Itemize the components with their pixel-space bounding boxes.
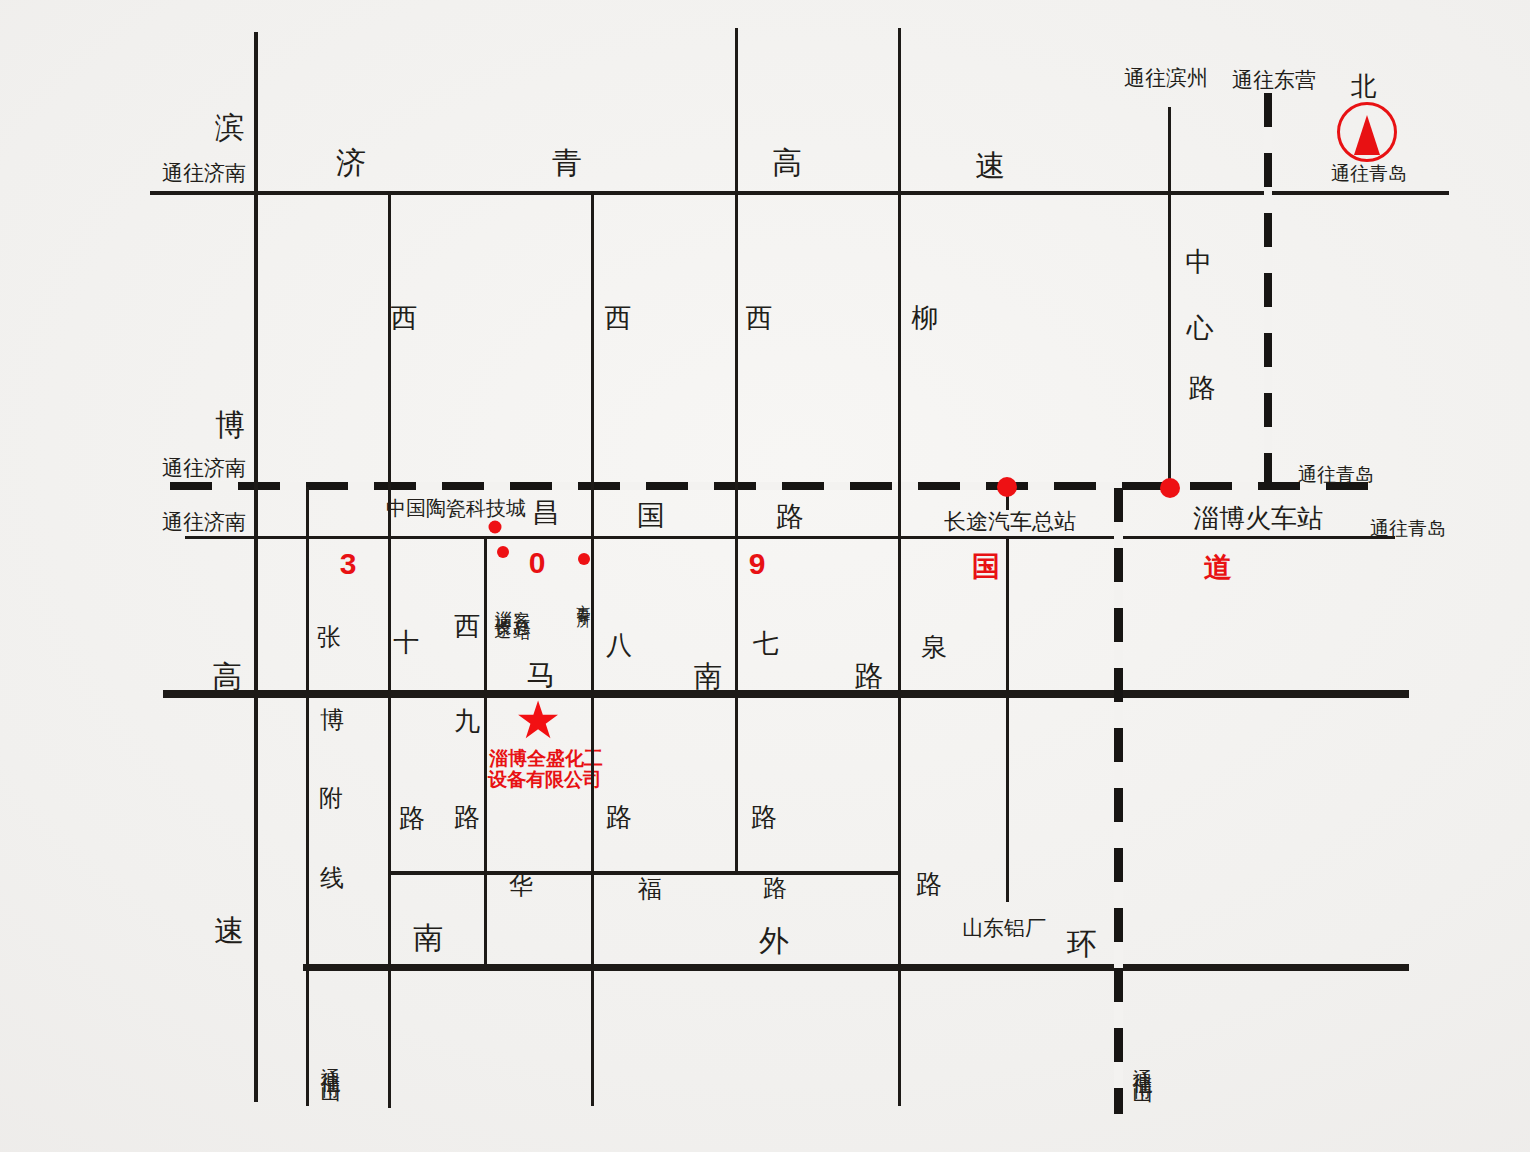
passenger-terminal-dot (497, 546, 509, 558)
zhongxin-road-char-xin: 心 (1187, 315, 1214, 342)
zhangbo-branch-char-zhang: 张 (317, 625, 341, 649)
compass-north-label: 北 (1351, 73, 1377, 99)
changguo-road-char-lu: 路 (776, 503, 804, 531)
huafu-road-char-fu: 福 (638, 877, 662, 901)
railway-station-dot (1160, 478, 1180, 498)
binbo-expressway-char-su: 速 (214, 916, 244, 946)
liuquan-road-char-lu: 路 (916, 871, 942, 897)
route309-digit-0: 0 (529, 548, 546, 578)
compass-needle-icon (1354, 115, 1380, 155)
xishi-road-char-xi: 西 (391, 305, 418, 332)
to-boshan-right: 通往博山 (1133, 1052, 1153, 1072)
bus-terminal-road-line (1006, 537, 1009, 902)
huafu-road-char-hua: 华 (509, 874, 533, 898)
zhangbo-branch-line (306, 487, 309, 1106)
to-jinan-changguo: 通往济南 (162, 511, 246, 532)
boshan-railway-line (1114, 488, 1123, 1114)
south-outer-ring-line (303, 964, 1409, 971)
south-ring-char-nan: 南 (413, 923, 443, 953)
zhangbo-branch-char-xian: 线 (320, 866, 344, 890)
route309-digit-9: 9 (749, 549, 766, 579)
binbo-expressway-line (254, 32, 258, 1102)
liuquan-road-char-quan: 泉 (921, 634, 947, 660)
to-binzhou: 通往滨州 (1124, 67, 1208, 88)
passenger-terminal-col-right: 客运总站 (514, 597, 531, 613)
xishi-road-char-shi: 十 (393, 629, 419, 655)
xiba-road-char-xi: 西 (605, 305, 632, 332)
binbo-expressway-char-bo: 博 (215, 410, 245, 440)
south-ring-char-wai: 外 (759, 926, 789, 956)
compass-to-qingdao-label: 通往青岛 (1331, 164, 1407, 183)
bus-terminal-dot (997, 477, 1017, 497)
manan-road-char-lu: 路 (855, 662, 884, 691)
changguo-road-char-chang: 昌 (532, 499, 560, 527)
to-boshan-left: 通往博山 (321, 1051, 341, 1071)
jiqing-expressway-char-gao: 高 (772, 148, 802, 178)
to-dongying: 通往东营 (1232, 69, 1316, 90)
huafu-road-char-lu: 路 (763, 876, 787, 900)
railway-station: 淄博火车站 (1193, 505, 1323, 531)
zhangbo-branch-char-fu: 附 (319, 786, 343, 810)
to-jinan-railway: 通往济南 (162, 457, 246, 478)
xiba-road-char-ba: 八 (606, 632, 632, 658)
xijiu-road-char-lu: 路 (454, 804, 480, 830)
to-qingdao-changguo: 通往青岛 (1370, 519, 1446, 538)
detention-center-dot (578, 553, 590, 565)
changguo-road-line (185, 536, 1395, 539)
to-jinan-top: 通往济南 (162, 162, 246, 183)
xiqi-road-char-qi: 七 (753, 630, 779, 656)
route309-char-dao: 道 (1204, 554, 1232, 582)
company-name-line2: 设备有限公司 (488, 770, 602, 789)
xiba-road-char-lu: 路 (606, 804, 632, 830)
xiqi-road-char-lu: 路 (751, 804, 777, 830)
manan-road-char-nan: 南 (694, 662, 723, 691)
manan-road-char-ma: 马 (527, 661, 556, 690)
jiaoji-railway-line (170, 482, 1390, 490)
route309-digit-3: 3 (340, 549, 357, 579)
passenger-terminal-col-left: 淄博长途 (495, 597, 512, 613)
dongying-dashed-line (1264, 93, 1272, 487)
shandong-aluminum-plant: 山东铝厂 (962, 917, 1046, 938)
xijiu-road-char-jiu: 九 (454, 708, 480, 734)
detention-center: 市看守所 (577, 593, 591, 605)
jiqing-expressway-char-qing: 青 (552, 148, 582, 178)
zhongxin-road-line (1168, 107, 1171, 487)
xijiu-road-char-xi: 西 (454, 613, 480, 639)
zhongxin-road-char-zhong: 中 (1186, 249, 1213, 276)
liuquan-road-char-liu: 柳 (912, 305, 939, 332)
ceramic-city-dot (489, 521, 502, 534)
binbo-expressway-char-gao: 高 (212, 662, 242, 692)
jiqing-expressway-line (150, 191, 1449, 195)
compass-icon (1337, 102, 1397, 162)
xiba-road-line (591, 193, 594, 1106)
ceramic-city: 中国陶瓷科技城 (386, 498, 526, 518)
liuquan-road-line (898, 28, 901, 1106)
changguo-road-char-guo: 国 (637, 502, 665, 530)
jiqing-expressway-char-ji: 济 (336, 148, 366, 178)
zhangbo-branch-char-bo: 博 (320, 708, 344, 732)
binbo-expressway-char-bin: 滨 (215, 113, 245, 143)
jiqing-expressway-char-su: 速 (975, 151, 1005, 181)
zhongxin-road-char-lu: 路 (1189, 375, 1216, 402)
xiqi-road-line (735, 28, 738, 875)
manan-road-line (163, 690, 1409, 698)
to-qingdao-railway: 通往青岛 (1298, 465, 1374, 484)
company-star-marker: ★ (515, 694, 562, 746)
bus-terminal: 长途汽车总站 (944, 511, 1076, 533)
company-name-line1: 淄博全盛化工 (489, 749, 603, 768)
south-ring-char-huan: 环 (1067, 929, 1097, 959)
route309-char-guo: 国 (972, 553, 1000, 581)
xishi-road-char-lu: 路 (399, 805, 425, 831)
xijiu-road-line (484, 537, 487, 969)
xiqi-road-char-xi: 西 (746, 305, 773, 332)
location-map: 北 通往青岛 ★ 淄博全盛化工 设备有限公司 滨通往济南济青高速通往滨州通往东营… (0, 0, 1530, 1152)
